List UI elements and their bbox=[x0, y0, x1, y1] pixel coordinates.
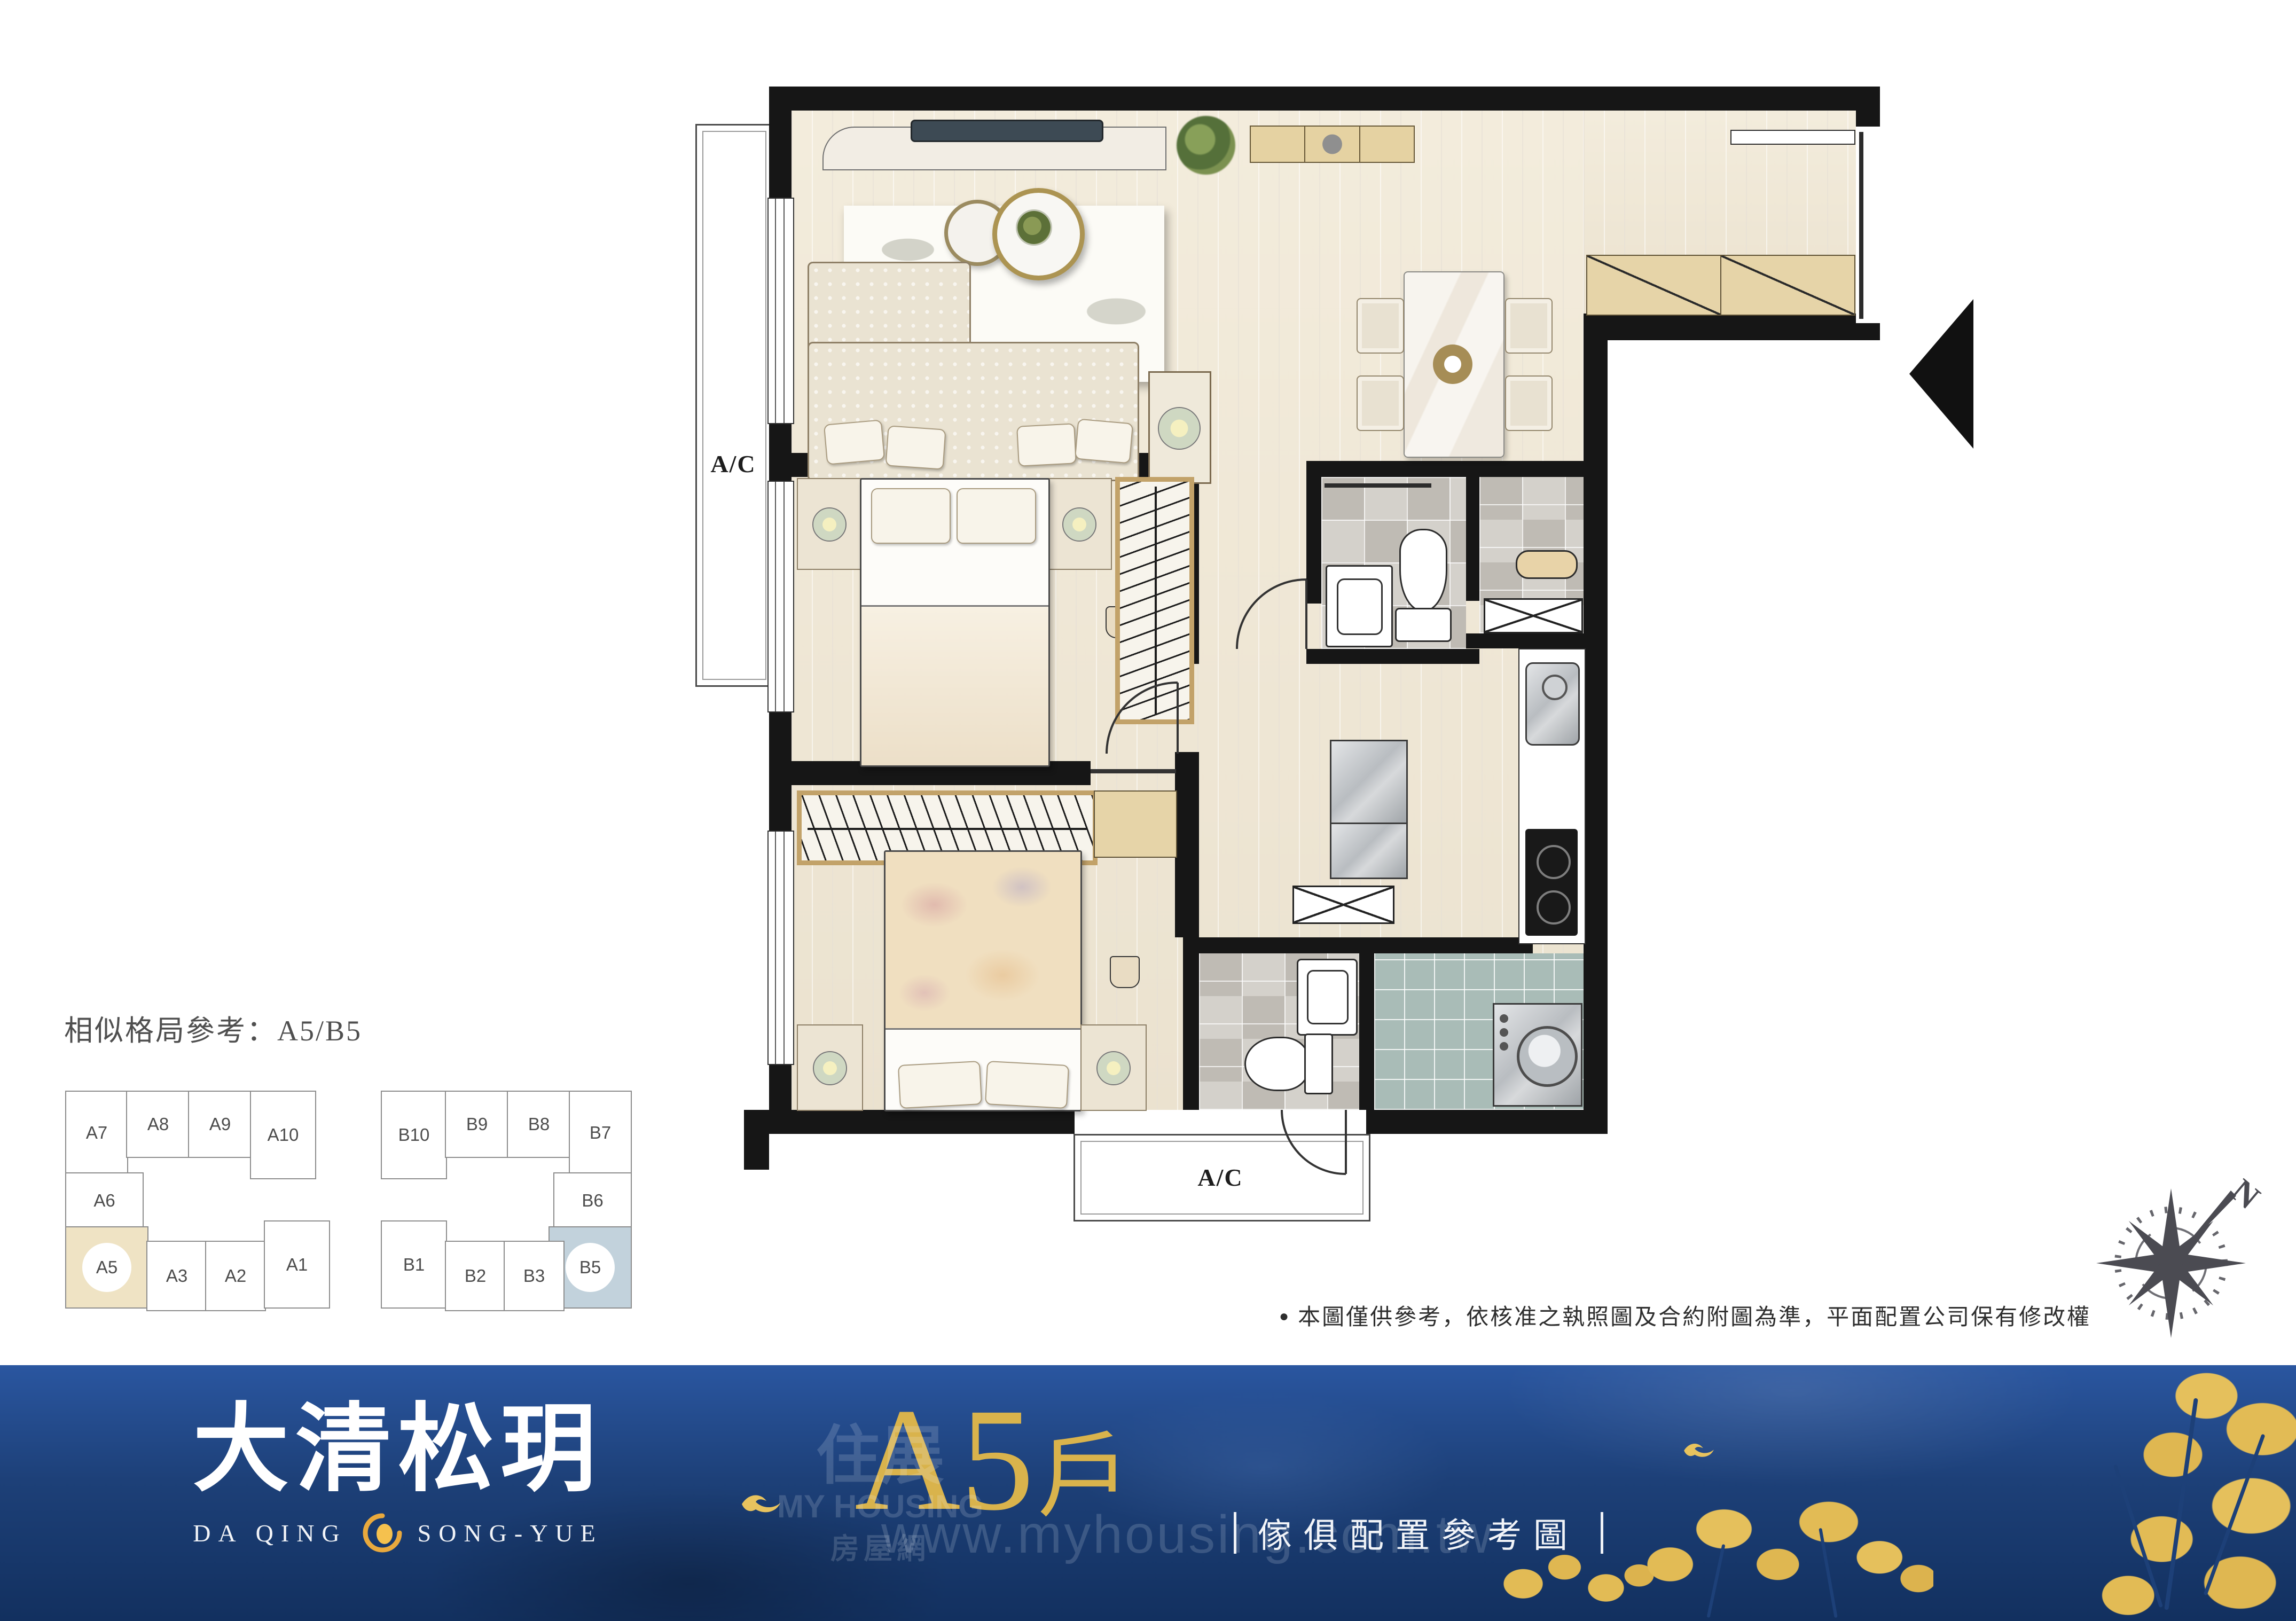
seagull-icon bbox=[740, 1489, 782, 1516]
keyplan-building-a: A7 A8 A9 A10 A6 A5 A3 A2 A1 bbox=[0, 988, 347, 1335]
tall-cabinet bbox=[1330, 823, 1408, 879]
bath2-sink-icon bbox=[1516, 550, 1578, 579]
keyplan-a5-bubble: A5 bbox=[82, 1243, 131, 1292]
bed1-pillow-1 bbox=[871, 488, 951, 544]
tree-silhouette-mid bbox=[1634, 1479, 1933, 1621]
wall-top bbox=[769, 87, 1880, 111]
tree-branch bbox=[1819, 1528, 1837, 1618]
disclaimer-bullet-icon: ● bbox=[1279, 1307, 1290, 1325]
wall-bath3-top bbox=[1183, 937, 1533, 953]
bed2-corner-shelf bbox=[1094, 790, 1177, 858]
washer-knob-icon bbox=[1500, 1028, 1508, 1037]
disclaimer-text: 本圖僅供參考，依核准之執照圖及合約附圖為準，平面配置公司保有修改權 bbox=[1298, 1304, 2091, 1329]
sofa-pillow-4 bbox=[1075, 419, 1133, 464]
wall-bottom-left bbox=[769, 1110, 1075, 1134]
wall-bath-top bbox=[1306, 461, 1584, 477]
wall-bath3-utility-divider bbox=[1359, 953, 1374, 1110]
reference-section: 相似格局參考：A5/B5 A7 A8 A9 A10 A6 A5 A3 A2 A1… bbox=[0, 988, 694, 1335]
ac-label-bottom: A/C bbox=[1148, 1163, 1292, 1192]
keyplan-unit-a9: A9 bbox=[188, 1091, 252, 1158]
bath1-basin-icon bbox=[1337, 578, 1383, 635]
utility-washer bbox=[1493, 1003, 1582, 1107]
toilet-tank bbox=[1304, 1033, 1333, 1094]
shoe-cabinet bbox=[1586, 255, 1855, 316]
unit-title: A5 戶 bbox=[855, 1387, 1131, 1533]
bed1 bbox=[860, 478, 1050, 767]
dining-plant-icon bbox=[1177, 116, 1235, 175]
keyplan-unit-b3: B3 bbox=[504, 1241, 565, 1311]
sofa-pillow-1 bbox=[824, 419, 885, 465]
wall-hall-stub bbox=[1175, 752, 1199, 785]
cabinet-cell bbox=[1251, 127, 1305, 162]
unit-code: A5 bbox=[855, 1387, 1034, 1533]
wall-left-c bbox=[769, 710, 792, 831]
keyplan-unit-b2: B2 bbox=[445, 1241, 506, 1311]
ac-label-left: A/C bbox=[701, 450, 766, 478]
burner-icon bbox=[1537, 845, 1571, 879]
bath3-toilet-icon bbox=[1244, 1033, 1335, 1092]
dining-chair-3 bbox=[1505, 298, 1553, 354]
entry-shelf bbox=[1730, 130, 1855, 145]
toilet-tank bbox=[1395, 608, 1452, 642]
bath1-toilet-icon bbox=[1395, 529, 1448, 644]
keyplan-unit-b9: B9 bbox=[445, 1091, 509, 1158]
keyplan-b5-bubble: B5 bbox=[566, 1243, 615, 1292]
wall-bath2-bottom bbox=[1466, 633, 1584, 648]
bed1-duvet bbox=[861, 605, 1048, 765]
dining-centerpiece-icon bbox=[1433, 344, 1472, 384]
caption-text: 傢俱配置參考圖 bbox=[1258, 1508, 1579, 1557]
bed2 bbox=[884, 850, 1082, 1111]
cabinet-cell-ornament bbox=[1305, 127, 1360, 162]
bath1-vanity bbox=[1326, 565, 1393, 647]
bed1-lamp-left-icon bbox=[812, 507, 847, 542]
wall-left-b bbox=[769, 422, 792, 481]
unit-caption: 傢俱配置參考圖 bbox=[1234, 1508, 1603, 1557]
window-bed2 bbox=[767, 831, 794, 1065]
caption-bar-icon bbox=[1234, 1512, 1236, 1554]
bath3-basin-icon bbox=[1307, 970, 1349, 1024]
keyplan-unit-a2: A2 bbox=[205, 1241, 266, 1311]
bed2-duvet bbox=[886, 852, 1080, 1030]
toilet-bowl bbox=[1399, 529, 1447, 612]
wall-left-a bbox=[769, 111, 792, 198]
brand-latin-right: SONG-YUE bbox=[418, 1519, 603, 1547]
wall-under-corridor bbox=[1584, 314, 1880, 340]
brand-logo-cjk: 大清松玥 bbox=[176, 1397, 620, 1503]
seagull-icon bbox=[1682, 1439, 1715, 1460]
bed2-lamp-right-icon bbox=[1096, 1051, 1131, 1085]
tree-branch bbox=[2113, 1465, 2163, 1608]
brand-logo-latin: DA QING SONG-YUE bbox=[176, 1513, 620, 1553]
entrance-arrow-icon bbox=[1909, 299, 1973, 449]
dining-chair-1 bbox=[1357, 298, 1404, 354]
shoe-cabinet-cell bbox=[1721, 256, 1854, 315]
bed1-pillow-2 bbox=[957, 488, 1036, 544]
sofa-pillow-2 bbox=[885, 425, 946, 469]
wall-right-main bbox=[1584, 315, 1608, 1134]
keyplan-unit-a3: A3 bbox=[146, 1241, 207, 1311]
tree-branch bbox=[2203, 1434, 2265, 1595]
keyplan-unit-a6: A6 bbox=[65, 1172, 144, 1228]
keyplan-unit-b6: B6 bbox=[553, 1172, 632, 1228]
brand-sun-icon bbox=[362, 1513, 403, 1553]
wall-corner-bl bbox=[744, 1110, 769, 1170]
bath3-sink bbox=[1297, 959, 1358, 1036]
keyplan-unit-a8: A8 bbox=[126, 1091, 190, 1158]
caption-bar-icon bbox=[1601, 1512, 1603, 1554]
wall-bath1-left bbox=[1306, 477, 1321, 604]
keyplan-building-b: B10 B9 B8 B7 B6 B5 B1 B2 B3 bbox=[315, 988, 662, 1335]
keyplan-unit-a5-highlighted: A5 bbox=[65, 1226, 148, 1309]
tree-branch bbox=[2164, 1398, 2198, 1610]
washer-box-2 bbox=[1292, 886, 1394, 924]
bed2-pillow-1 bbox=[898, 1061, 982, 1109]
dining-cabinet bbox=[1250, 126, 1415, 163]
toilet-bowl bbox=[1244, 1037, 1309, 1091]
keyplan-unit-b7: B7 bbox=[569, 1091, 632, 1174]
burner-icon bbox=[1537, 890, 1571, 925]
sink-drain-icon bbox=[1542, 675, 1568, 700]
cooktop bbox=[1525, 829, 1578, 936]
disclaimer: ●本圖僅供參考，依核准之執照圖及合約附圖為準，平面配置公司保有修改權 bbox=[1279, 1299, 2134, 1332]
bed2-pillow-2 bbox=[985, 1061, 1069, 1109]
keyplan-unit-b1: B1 bbox=[381, 1220, 447, 1309]
window-living bbox=[767, 198, 794, 424]
wall-bottom-right bbox=[1366, 1110, 1608, 1134]
wall-bath-divider bbox=[1466, 477, 1479, 601]
brand-latin-left: DA QING bbox=[193, 1519, 347, 1547]
tree-branch bbox=[1707, 1544, 1726, 1618]
keyplan-unit-b8: B8 bbox=[507, 1091, 571, 1158]
tv bbox=[911, 120, 1103, 142]
washer-knob-icon bbox=[1500, 1042, 1508, 1051]
sofa-pillow-3 bbox=[1016, 423, 1077, 467]
wall-entry-top bbox=[1856, 87, 1880, 127]
banner: 大清松玥 DA QING SONG-YUE A5 戶 傢俱配置參考圖 住展 MY… bbox=[0, 1365, 2296, 1621]
side-table-lamp-icon bbox=[1158, 407, 1201, 450]
unit-suffix: 戶 bbox=[1037, 1431, 1131, 1524]
table-plant-icon bbox=[1017, 211, 1051, 244]
bed2-vase-icon bbox=[1110, 956, 1140, 988]
window-bed1 bbox=[767, 481, 794, 712]
cabinet-cell bbox=[1360, 127, 1414, 162]
brand-logo: 大清松玥 DA QING SONG-YUE bbox=[176, 1397, 620, 1553]
watermark-brand-latin1: MY bbox=[777, 1488, 825, 1525]
entrance-door-leaf bbox=[1859, 132, 1863, 319]
compass-rose: N bbox=[2086, 1167, 2262, 1349]
keyplan-unit-a10: A10 bbox=[250, 1091, 316, 1179]
shoe-cabinet-cell bbox=[1587, 256, 1721, 315]
dining-chair-4 bbox=[1505, 375, 1553, 431]
ac-balcony-left bbox=[695, 124, 773, 687]
wall-bath3-left bbox=[1183, 953, 1199, 1110]
washer-box-1 bbox=[1484, 598, 1583, 633]
keyplan-unit-b10: B10 bbox=[381, 1091, 447, 1179]
bath1-shower-rail bbox=[1325, 483, 1431, 488]
wardrobe-hall bbox=[1115, 477, 1194, 724]
bed1-lamp-right-icon bbox=[1062, 507, 1096, 542]
kitchen-sink bbox=[1525, 662, 1580, 746]
wall-bath1-bottom bbox=[1306, 649, 1479, 664]
keyplan-unit-a7: A7 bbox=[65, 1091, 128, 1174]
washer-door-icon bbox=[1517, 1026, 1578, 1087]
tree-silhouette-right bbox=[2072, 1365, 2296, 1621]
wall-hall-lower bbox=[1175, 785, 1199, 937]
bed2-lamp-left-icon bbox=[813, 1051, 847, 1085]
poster-page: { "plan": { "ac_left": "A/C", "ac_bottom… bbox=[0, 0, 2296, 1621]
refrigerator bbox=[1330, 740, 1408, 826]
washer-knob-icon bbox=[1500, 1014, 1508, 1023]
dining-chair-2 bbox=[1357, 375, 1404, 431]
compass-n-label: N bbox=[2224, 1171, 2262, 1216]
